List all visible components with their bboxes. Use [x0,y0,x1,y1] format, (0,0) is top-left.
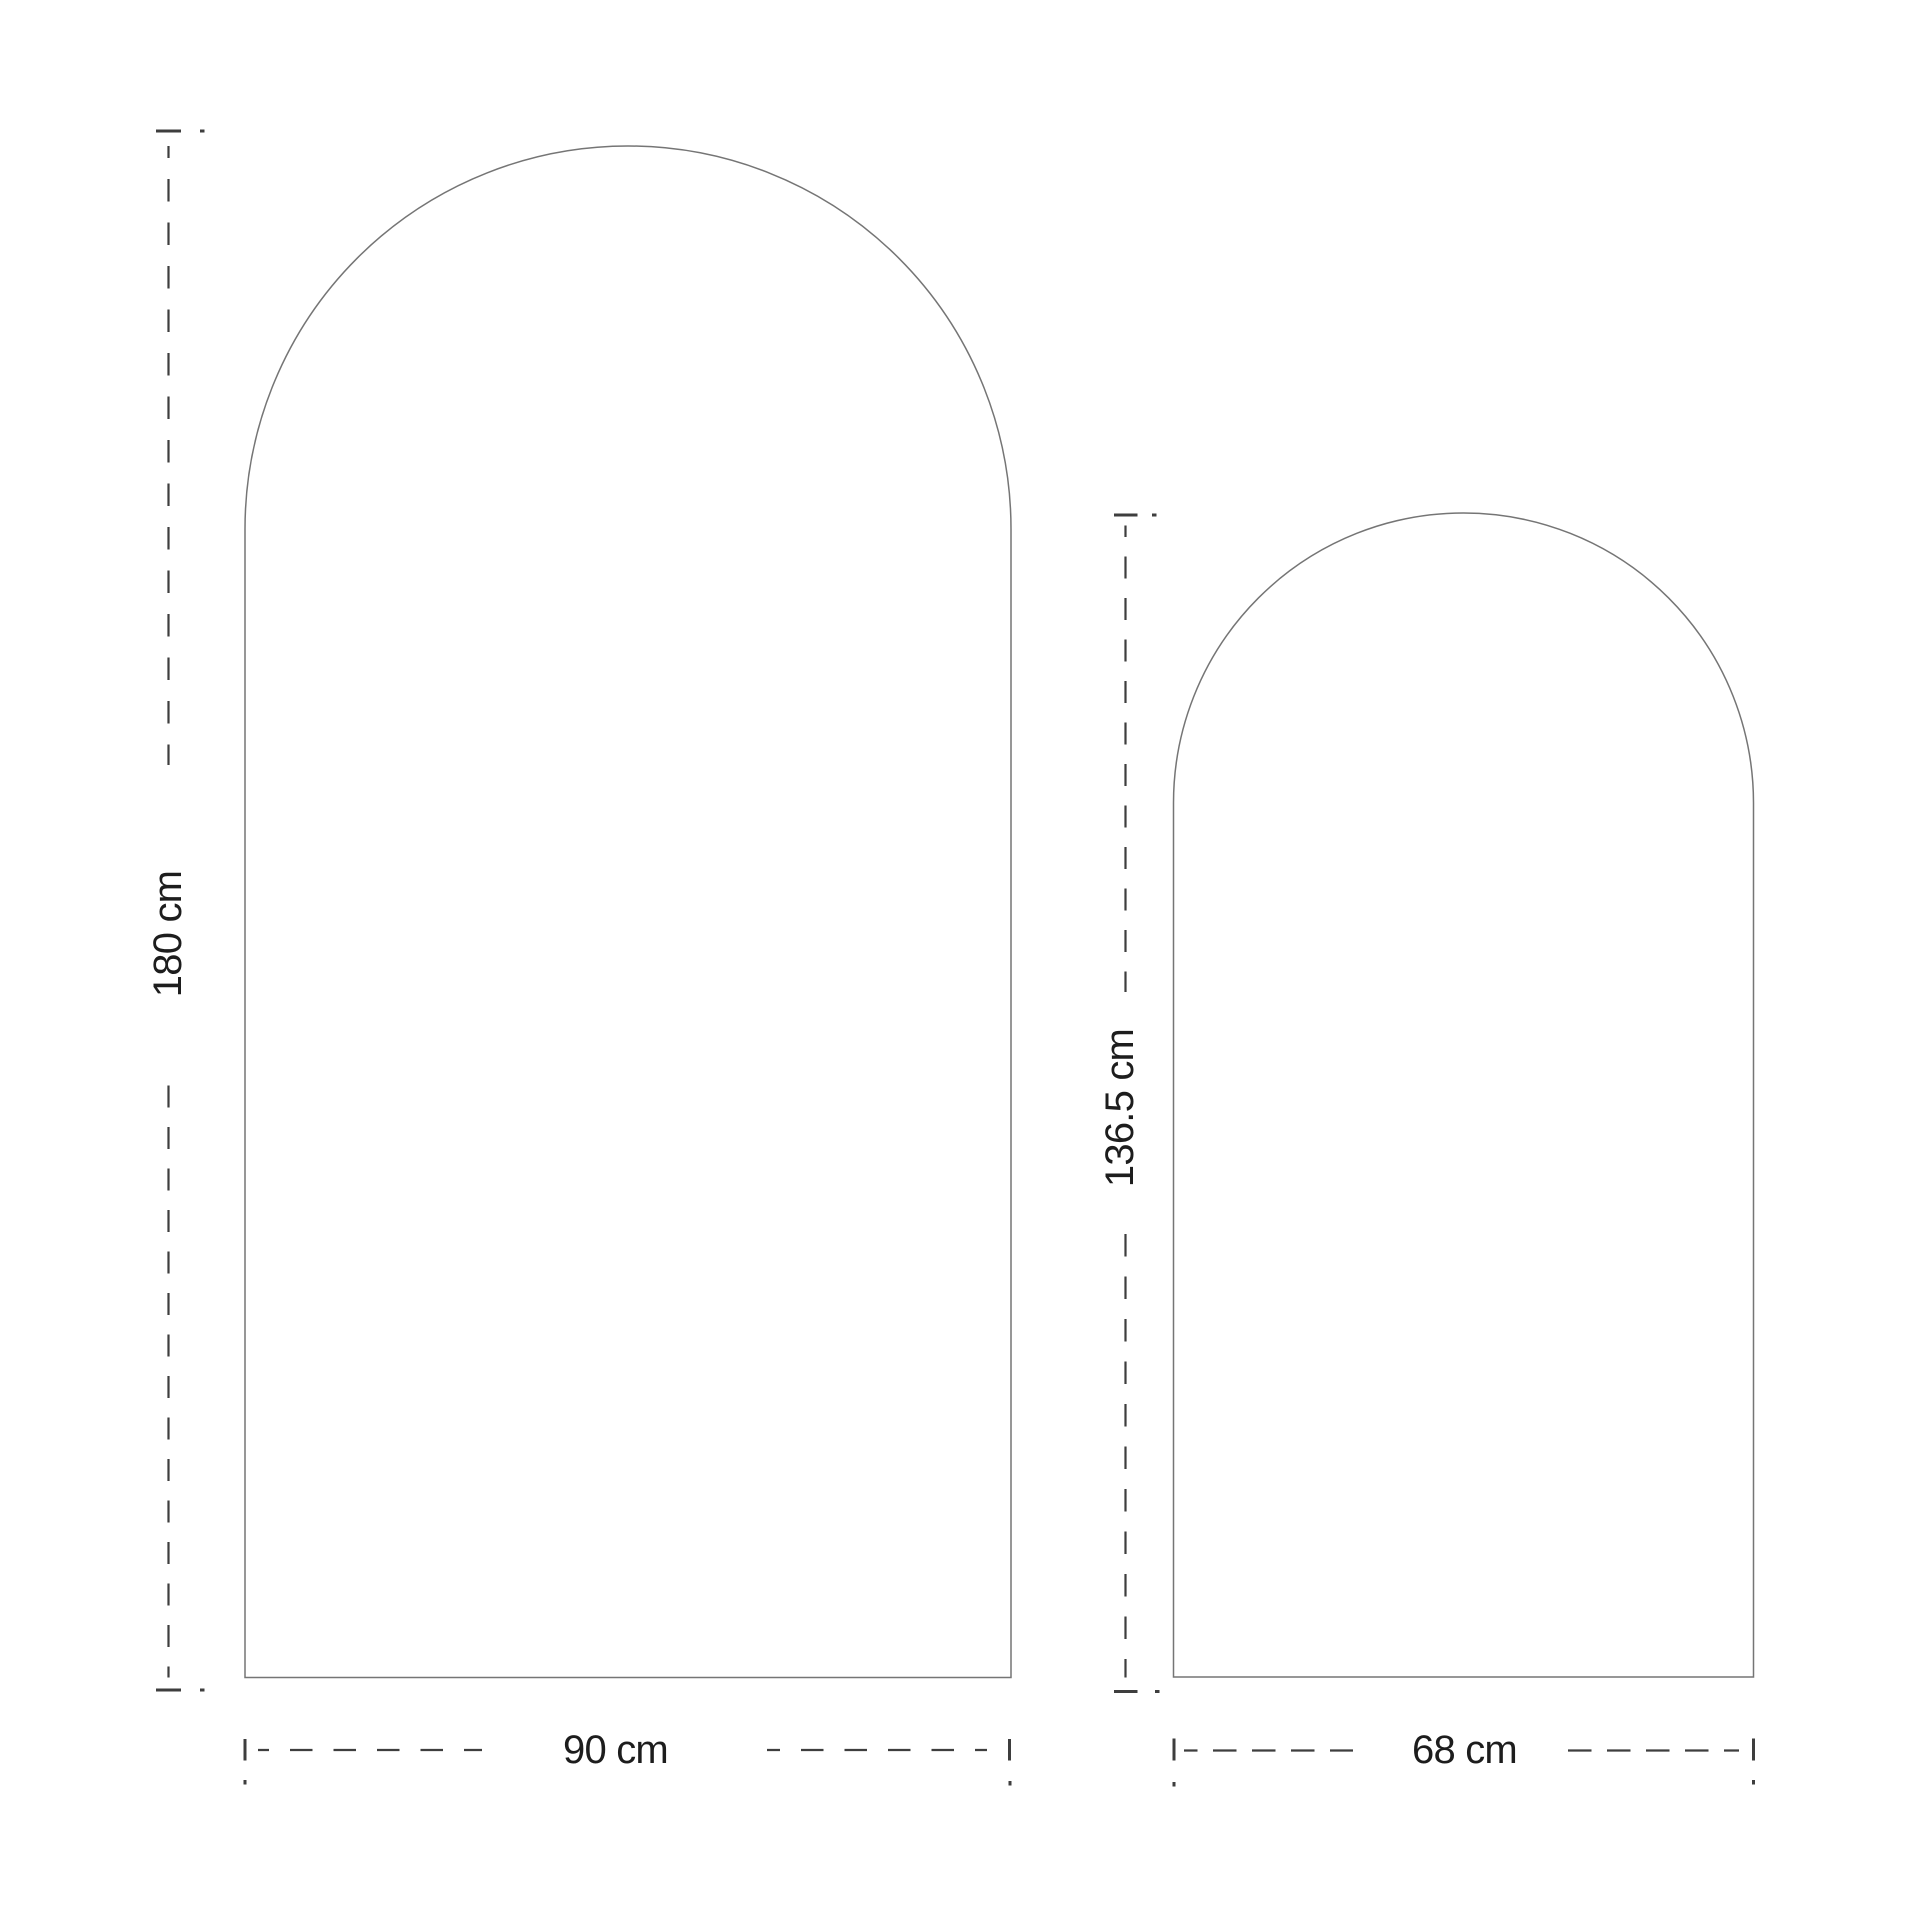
svg-text:68 cm: 68 cm [1412,1728,1517,1772]
svg-text:90 cm: 90 cm [563,1728,668,1772]
svg-text:136.5 cm: 136.5 cm [1098,1029,1142,1187]
svg-text:180 cm: 180 cm [146,871,190,997]
